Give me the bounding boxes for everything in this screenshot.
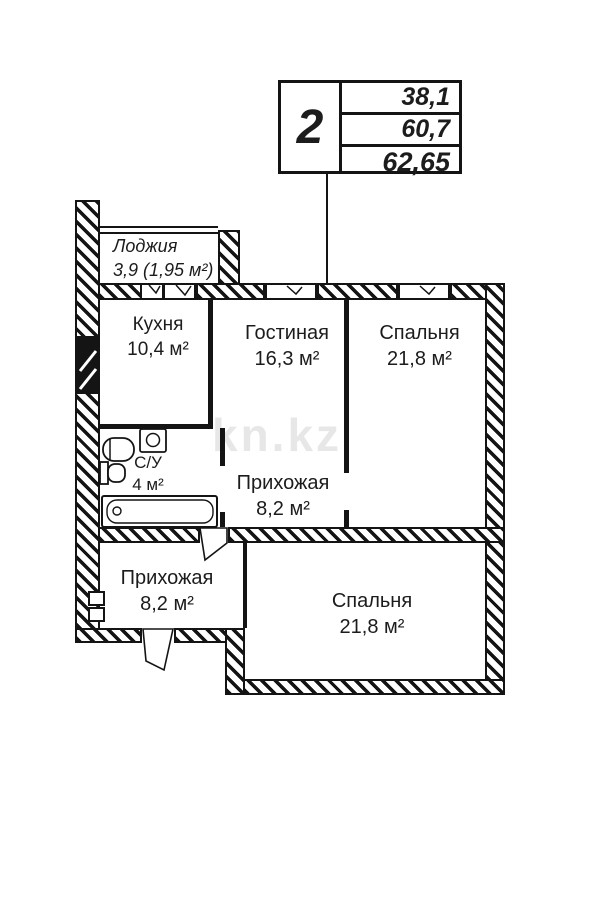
living-area-value: 38,1	[342, 83, 459, 112]
window-check-icon	[149, 285, 160, 293]
room-label-hallway2: Прихожая 8,2 м²	[97, 565, 237, 618]
full-area-value: 62,65	[342, 144, 459, 178]
area-table: 38,1 60,7 62,65	[342, 83, 459, 171]
window-check-icon	[176, 285, 191, 295]
room-label-hallway1: Прихожая 8,2 м²	[213, 470, 353, 523]
window-check-icon	[287, 286, 302, 294]
room-label-bedroom2: Спальня 21,8 м²	[302, 588, 442, 641]
rooms-count: 2	[281, 83, 342, 171]
window-check-icon	[420, 286, 435, 294]
room-label-bedroom1: Спальня 21,8 м²	[352, 320, 487, 373]
room-label-bathroom: С/У 4 м²	[113, 452, 183, 497]
room-label-living: Гостиная 16,3 м²	[222, 320, 352, 373]
floor-plan: kn.kz 2 38,1 60,7 62,65	[0, 0, 600, 900]
entrance-door-icon	[143, 629, 173, 670]
vent-slash-icon	[80, 351, 96, 371]
total-area-value: 60,7	[342, 112, 459, 144]
room-label-loggia: Лоджия 3,9 (1,95 м²)	[113, 235, 223, 283]
washing-machine-icon	[140, 429, 166, 452]
apartment-title-block: 2 38,1 60,7 62,65	[278, 80, 462, 174]
vent-slash-icon	[80, 369, 96, 389]
door-swing-icon	[200, 528, 227, 560]
toilet-tank-icon	[100, 462, 108, 484]
room-label-kitchen: Кухня 10,4 м²	[103, 312, 213, 362]
